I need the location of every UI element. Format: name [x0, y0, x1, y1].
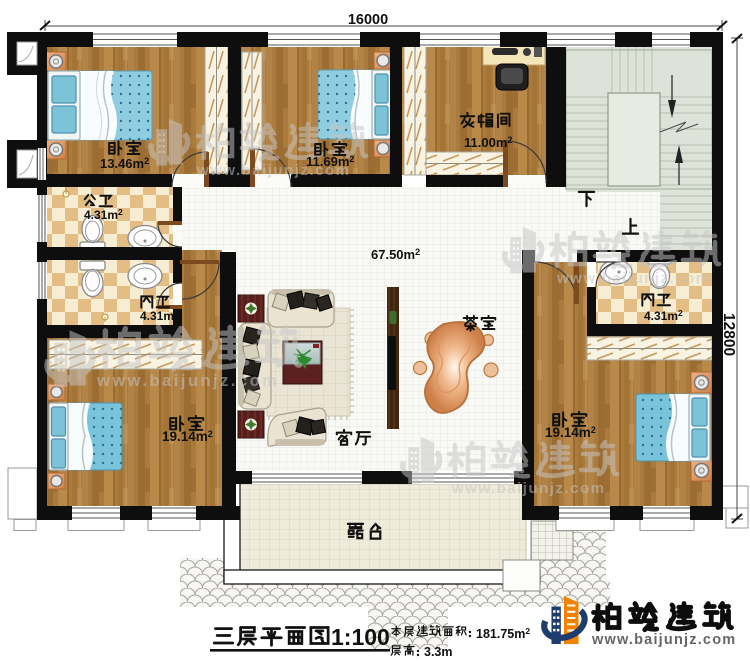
svg-text:4.31m2: 4.31m2: [140, 308, 179, 323]
svg-text:www.baijunjz.com: www.baijunjz.com: [96, 372, 279, 390]
svg-text:www.baijunjz.com: www.baijunjz.com: [556, 270, 710, 287]
svg-text:19.14m2: 19.14m2: [545, 425, 596, 440]
svg-text:12800: 12800: [720, 313, 737, 356]
svg-text:13.46m2: 13.46m2: [100, 156, 149, 171]
svg-text:1:100: 1:100: [331, 624, 390, 650]
svg-text:www.baijunjz.com: www.baijunjz.com: [451, 480, 605, 497]
svg-text:4.31m2: 4.31m2: [644, 308, 683, 323]
svg-text:67.50m2: 67.50m2: [371, 247, 420, 262]
svg-text:4.31m2: 4.31m2: [84, 207, 123, 222]
svg-text:19.14m2: 19.14m2: [162, 429, 213, 444]
svg-text:181.75m2: 181.75m2: [476, 626, 530, 641]
svg-text:11.69m2: 11.69m2: [306, 154, 354, 169]
svg-text:16000: 16000: [348, 12, 388, 28]
svg-text:www.baijunjz.com: www.baijunjz.com: [591, 632, 736, 648]
svg-text:3.3m: 3.3m: [424, 645, 453, 659]
svg-text:11.00m2: 11.00m2: [464, 135, 512, 150]
